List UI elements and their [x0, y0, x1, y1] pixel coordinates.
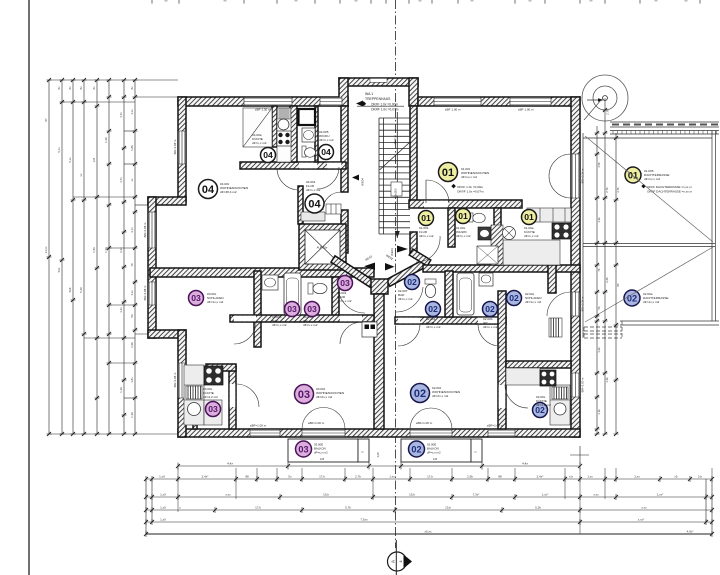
svg-text:xx5: xx5: [92, 157, 96, 162]
svg-text:1,xx: 1,xx: [587, 474, 593, 478]
svg-text:≤BF 1.00 m: ≤BF 1.00 m: [445, 108, 461, 112]
svg-text:01: 01: [421, 213, 431, 223]
svg-text:x,xx*: x,xx*: [638, 517, 645, 521]
svg-text:dF=4,2 m2: dF=4,2 m2: [203, 395, 218, 399]
svg-text:1,3b: 1,3b: [597, 217, 601, 223]
svg-text:1,x0: 1,x0: [160, 505, 166, 509]
svg-text:1,2b: 1,2b: [104, 137, 108, 143]
svg-text:03: 03: [208, 404, 218, 414]
svg-text:zx5: zx5: [320, 457, 325, 461]
svg-text:≤BF≈1.00 m: ≤BF≈1.00 m: [416, 421, 433, 425]
svg-text:x,xx: x,xx: [593, 492, 599, 496]
svg-text:1,7x: 1,7x: [119, 177, 123, 183]
svg-text:04: 04: [321, 147, 331, 157]
svg-text:03: 03: [307, 304, 317, 314]
svg-text:18x17,2: 18x17,2: [393, 135, 397, 145]
svg-text:1,xx: 1,xx: [130, 109, 134, 115]
svg-text:zx5: zx5: [433, 457, 438, 461]
svg-text:WA.1: WA.1: [365, 92, 373, 96]
svg-text:1,xx*: 1,xx*: [542, 492, 550, 496]
svg-text:88: 88: [245, 474, 249, 478]
svg-text:17,b: 17,b: [255, 505, 261, 509]
svg-text:B/H≈1.88 m: B/H≈1.88 m: [143, 222, 147, 237]
svg-text:dF=2x,x m2: dF=2x,x m2: [432, 394, 449, 398]
svg-text:1,4b: 1,4b: [597, 347, 601, 353]
svg-text:1,8x: 1,8x: [130, 377, 134, 383]
svg-text:2,4x*: 2,4x*: [537, 474, 545, 478]
svg-text:1,1b: 1,1b: [597, 409, 601, 415]
svg-text:dF=1x,x m2: dF=1x,x m2: [525, 300, 542, 304]
svg-text:x5: x5: [674, 474, 678, 478]
svg-text:dF=x,x m2: dF=x,x m2: [419, 234, 434, 238]
svg-text:x5,xx: x5,xx: [424, 529, 432, 533]
svg-text:5,xx: 5,xx: [68, 157, 72, 163]
svg-text:1,x0: 1,x0: [160, 492, 166, 496]
svg-text:x,b: x,b: [569, 474, 573, 478]
svg-text:1,5b: 1,5b: [92, 247, 96, 253]
svg-text:13,b: 13,b: [445, 505, 451, 509]
svg-text:01: 01: [442, 167, 454, 179]
svg-text:03: 03: [191, 293, 201, 303]
svg-text:8b: 8b: [616, 283, 620, 287]
svg-text:dF=x,x m2: dF=x,x m2: [252, 141, 267, 145]
svg-text:02: 02: [414, 388, 426, 400]
svg-text:≤BF≈1.00 m: ≤BF≈1.00 m: [250, 424, 267, 428]
svg-text:dF=x,x m2: dF=x,x m2: [398, 297, 413, 301]
svg-text:dF=4,2 m2: dF=4,2 m2: [536, 403, 551, 407]
svg-text:17,b: 17,b: [319, 474, 325, 478]
svg-text:1,xx: 1,xx: [389, 474, 395, 478]
svg-text:04: 04: [202, 184, 214, 196]
svg-text:2,3x: 2,3x: [119, 247, 123, 253]
svg-text:dF=38,4 m2: dF=38,4 m2: [220, 190, 237, 194]
svg-text:7,5xx: 7,5xx: [360, 517, 368, 521]
svg-text:5b: 5b: [597, 306, 601, 310]
svg-text:≤BF≈1.00 m: ≤BF≈1.00 m: [308, 421, 325, 425]
svg-text:02: 02: [411, 444, 421, 454]
svg-text:03: 03: [298, 389, 310, 401]
svg-text:02: 02: [485, 304, 495, 314]
svg-text:2,5b: 2,5b: [467, 474, 473, 478]
svg-text:dF=x,x m2: dF=x,x m2: [456, 234, 471, 238]
svg-text:OKFF 1.0x =0,00m: OKFF 1.0x =0,00m: [457, 185, 484, 189]
svg-text:dF=x,x m2: dF=x,x m2: [272, 323, 287, 327]
svg-text:13,b: 13,b: [323, 492, 329, 496]
svg-text:5,2b: 5,2b: [79, 287, 83, 293]
svg-text:1,xx*: 1,xx*: [657, 492, 665, 496]
svg-text:dF=x,x m2: dF=x,x m2: [524, 234, 539, 238]
svg-text:dF=1x,x m2: dF=1x,x m2: [643, 300, 660, 304]
svg-text:2,7b: 2,7b: [355, 474, 361, 478]
svg-text:dF=x,x m2: dF=x,x m2: [483, 325, 498, 329]
svg-text:01: 01: [524, 212, 534, 222]
svg-text:dF=x,x m2: dF=x,x m2: [314, 451, 328, 455]
svg-text:dF=2x,x m2: dF=2x,x m2: [316, 395, 333, 399]
svg-text:1,2b: 1,2b: [130, 412, 134, 418]
svg-text:dF=1x,x m2: dF=1x,x m2: [207, 300, 224, 304]
svg-text:4,9x*: 4,9x*: [687, 529, 695, 533]
svg-text:3,7b: 3,7b: [616, 187, 620, 193]
svg-text:03: 03: [340, 278, 350, 288]
svg-text:1,1b: 1,1b: [119, 387, 123, 393]
svg-text:04: 04: [263, 150, 273, 160]
svg-text:5x: 5x: [288, 474, 292, 478]
svg-text:1,xx: 1,xx: [634, 474, 640, 478]
svg-text:13,b: 13,b: [409, 492, 415, 496]
svg-text:A: A: [391, 560, 396, 563]
svg-text:2,b: 2,b: [698, 474, 703, 478]
svg-text:2,2b: 2,2b: [605, 277, 609, 283]
svg-text:AUF.05e: AUF.05e: [317, 246, 328, 250]
svg-text:dF=x,x m2: dF=x,x m2: [426, 325, 441, 329]
svg-text:dF=x,x m2: dF=x,x m2: [319, 138, 334, 142]
svg-text:TREPPENHAUS: TREPPENHAUS: [365, 97, 391, 101]
svg-text:B/H≈2.26 m: B/H≈2.26 m: [581, 296, 585, 311]
svg-text:x,xx: x,xx: [641, 505, 647, 509]
svg-text:4,4z: 4,4z: [227, 462, 233, 466]
svg-text:OKFF DACHTERRASSE =x,xx m: OKFF DACHTERRASSE =x,xx m: [647, 185, 692, 189]
svg-text:2,7b: 2,7b: [605, 187, 609, 193]
svg-text:02: 02: [407, 277, 417, 287]
svg-text:OKRF 1.0x =0,0?m: OKRF 1.0x =0,0?m: [457, 190, 484, 194]
svg-text:14,xx: 14,xx: [44, 246, 48, 253]
svg-text:OKFF 1.0x =0,00m: OKFF 1.0x =0,00m: [371, 102, 398, 106]
svg-text:x,xx: x,xx: [225, 492, 231, 496]
svg-text:B/H≈2.26 m: B/H≈2.26 m: [581, 168, 585, 183]
svg-text:2,76: 2,76: [606, 109, 610, 115]
svg-text:2,xx: 2,xx: [130, 227, 134, 233]
svg-text:B/H≈1.88 m: B/H≈1.88 m: [173, 372, 177, 387]
svg-text:1,x5: 1,x5: [376, 452, 380, 458]
svg-text:17,b: 17,b: [427, 474, 433, 478]
svg-text:87: 87: [44, 118, 48, 122]
svg-text:03: 03: [298, 444, 308, 454]
svg-text:2,4x*: 2,4x*: [202, 474, 210, 478]
svg-text:03: 03: [287, 304, 297, 314]
svg-text:52x: 52x: [57, 267, 61, 272]
svg-text:5,7b: 5,7b: [345, 505, 351, 509]
svg-text:B/H≈1.88 m: B/H≈1.88 m: [143, 285, 147, 300]
svg-text:dF=x,x m2: dF=x,x m2: [303, 323, 318, 327]
svg-text:B/H≈1.00 m: B/H≈1.00 m: [581, 377, 585, 392]
svg-text:OKRF 1.0x =0,0?m: OKRF 1.0x =0,0?m: [371, 107, 399, 111]
svg-text:1,3b: 1,3b: [104, 247, 108, 253]
svg-text:dF=x,x m2: dF=x,x m2: [427, 451, 441, 455]
svg-text:dF=x,x m2: dF=x,x m2: [306, 188, 321, 192]
svg-text:1,8b: 1,8b: [130, 145, 134, 151]
svg-text:1,4b: 1,4b: [605, 377, 609, 383]
svg-text:≤BF≈1.00 m: ≤BF≈1.00 m: [487, 424, 504, 428]
svg-text:10x18,5: 10x18,5: [394, 188, 398, 198]
svg-text:WE04: WE04: [361, 178, 365, 186]
svg-text:dF=xx,x m2: dF=xx,x m2: [461, 175, 477, 179]
svg-text:7b: 7b: [597, 268, 601, 272]
svg-text:5,2b: 5,2b: [535, 505, 541, 509]
svg-text:1,7x: 1,7x: [119, 112, 123, 118]
svg-text:1,0b: 1,0b: [130, 342, 134, 348]
svg-text:1,xx: 1,xx: [130, 290, 134, 296]
svg-text:4,4z: 4,4z: [522, 462, 528, 466]
svg-text:52b: 52b: [68, 287, 72, 292]
svg-text:7,3x*: 7,3x*: [473, 492, 481, 496]
svg-text:5b: 5b: [130, 314, 134, 318]
svg-text:04: 04: [308, 198, 320, 210]
svg-text:01: 01: [458, 211, 468, 221]
svg-text:88: 88: [498, 474, 502, 478]
svg-text:dF=xx,x m2: dF=xx,x m2: [644, 177, 660, 181]
svg-text:1,x0: 1,x0: [160, 517, 166, 521]
svg-text:1,x0: 1,x0: [159, 474, 165, 478]
svg-text:B/H≈1.88 m: B/H≈1.88 m: [173, 139, 177, 154]
svg-text:02: 02: [509, 293, 519, 303]
svg-text:7b: 7b: [130, 263, 134, 267]
svg-text:dF=x,x m2: dF=x,x m2: [337, 299, 352, 303]
svg-text:≤BF 1.00 m: ≤BF 1.00 m: [518, 108, 534, 112]
svg-text:02: 02: [428, 304, 438, 314]
svg-text:1,5b: 1,5b: [597, 162, 601, 168]
svg-text:1,4x: 1,4x: [119, 307, 123, 313]
svg-text:5,xx: 5,xx: [57, 147, 61, 153]
svg-text:≤BF 1.30 m: ≤BF 1.30 m: [255, 108, 271, 112]
